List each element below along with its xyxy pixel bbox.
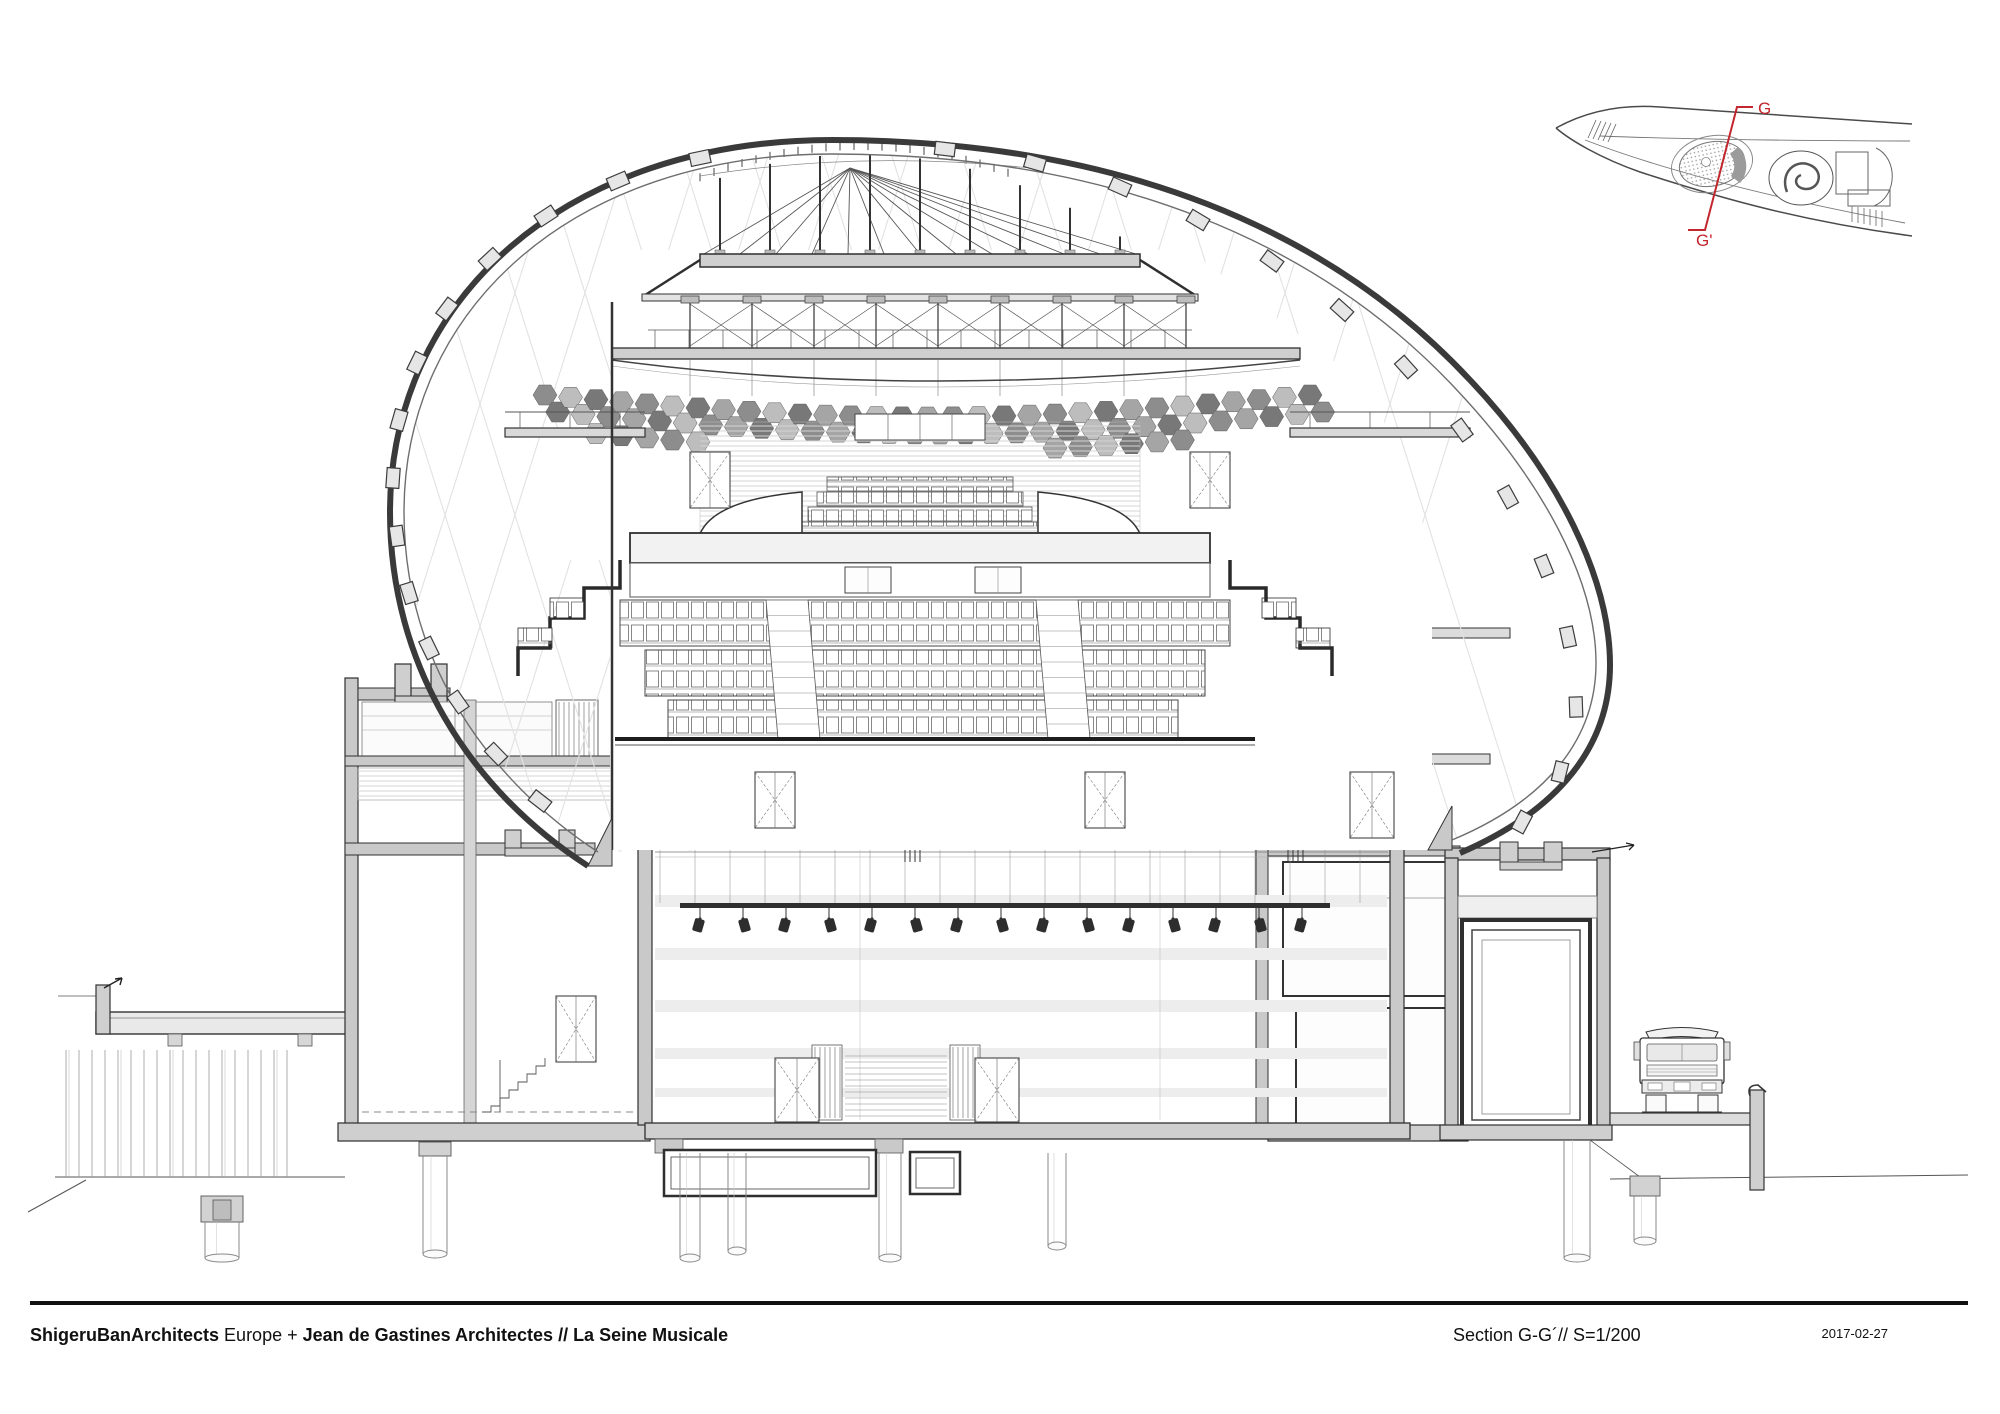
key-plan-stern-hatch xyxy=(1852,206,1882,227)
clerestory-posts xyxy=(715,154,1125,256)
stepped-risers xyxy=(845,1056,947,1116)
drawing-sheet: G G' ShigeruBanArchitects Europe + Jean … xyxy=(0,0,2000,1414)
title-rule xyxy=(30,1301,1968,1305)
left-annex xyxy=(338,664,650,1141)
seating-bowl xyxy=(615,600,1255,745)
key-plan-bow-hatch xyxy=(1588,120,1616,142)
rig-hangers xyxy=(660,846,1360,903)
stage-lights xyxy=(692,908,1307,933)
balcony-fascia xyxy=(630,533,1210,597)
section-label-end: G' xyxy=(1696,231,1712,250)
basement-boxes xyxy=(664,1150,960,1196)
right-annex-loading-dock xyxy=(1440,842,1766,1190)
firm-line: ShigeruBanArchitects Europe + Jean de Ga… xyxy=(30,1325,728,1345)
title-block: ShigeruBanArchitects Europe + Jean de Ga… xyxy=(30,1301,1968,1345)
truck xyxy=(1634,1028,1730,1113)
key-plan: G G' xyxy=(1556,99,1912,250)
drawing-title: Section G-G´// S=1/200 xyxy=(1453,1325,1641,1345)
left-walkway-deck xyxy=(66,978,346,1177)
ramp-stair-hatch xyxy=(66,1050,287,1177)
section-drawing: G G' ShigeruBanArchitects Europe + Jean … xyxy=(0,0,2000,1414)
section-label-start: G xyxy=(1758,99,1771,118)
drawing-date: 2017-02-27 xyxy=(1822,1326,1889,1341)
